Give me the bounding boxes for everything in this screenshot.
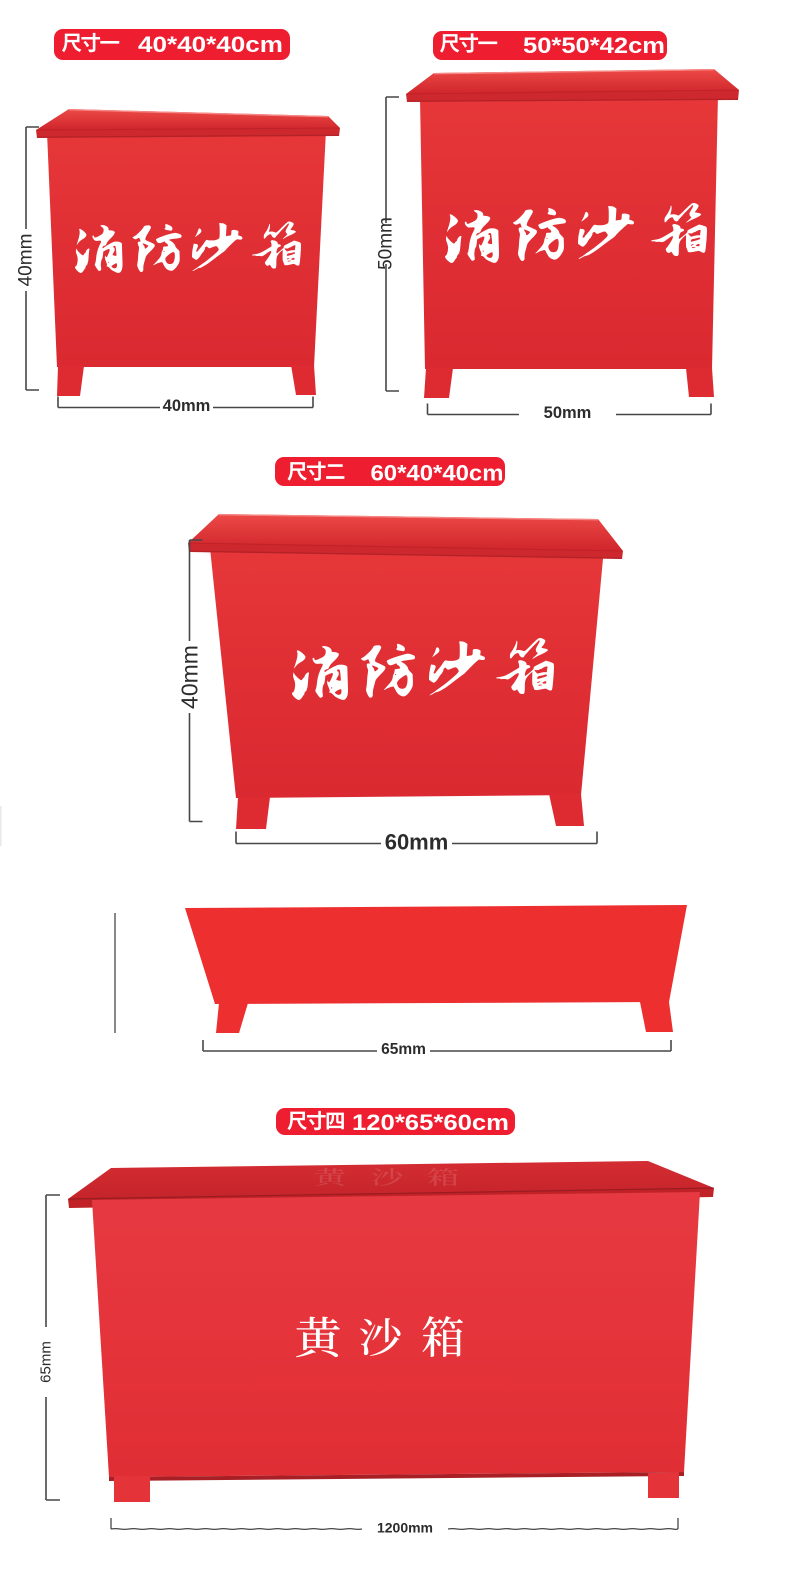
svg-text:60mm: 60mm <box>385 830 449 855</box>
svg-text:40*40*40cm: 40*40*40cm <box>138 32 283 57</box>
svg-text:60*40*40cm: 60*40*40cm <box>371 461 504 486</box>
svg-text:65mm: 65mm <box>381 1041 426 1058</box>
svg-text:65mm: 65mm <box>38 1341 55 1383</box>
svg-text:50*50*42cm: 50*50*42cm <box>523 33 665 58</box>
svg-text:50mm: 50mm <box>544 404 592 422</box>
svg-text:40mm: 40mm <box>16 234 37 287</box>
svg-text:40mm: 40mm <box>163 397 211 415</box>
svg-text:50mm: 50mm <box>376 217 397 270</box>
svg-text:1200mm: 1200mm <box>377 1520 433 1536</box>
svg-text:120*65*60cm: 120*65*60cm <box>352 1110 509 1135</box>
svg-text:40mm: 40mm <box>177 645 203 709</box>
